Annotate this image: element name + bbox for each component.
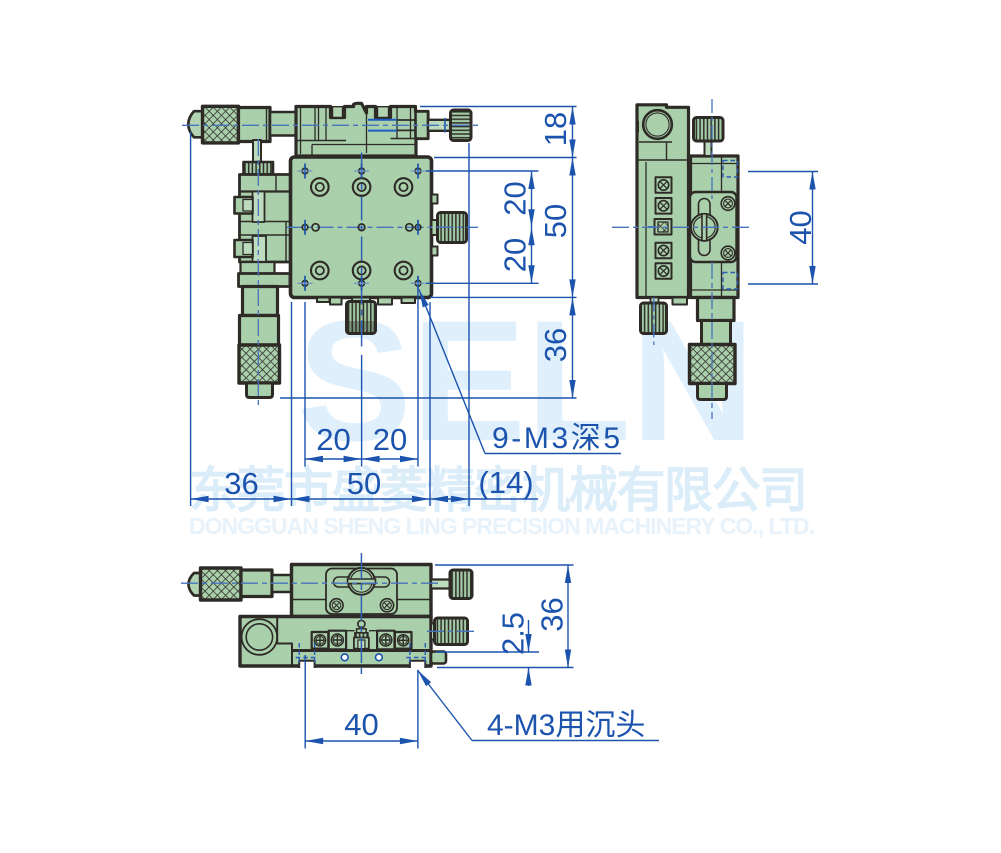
svg-text:20: 20: [497, 238, 532, 272]
svg-text:40: 40: [783, 210, 818, 244]
svg-text:50: 50: [538, 204, 573, 238]
svg-text:DONGGUAN SHENG LING PRECISION: DONGGUAN SHENG LING PRECISION MACHINERY …: [189, 513, 815, 539]
svg-text:36: 36: [535, 597, 570, 631]
svg-text:2.5: 2.5: [495, 612, 530, 655]
svg-text:50: 50: [347, 466, 381, 501]
svg-text:18: 18: [538, 112, 573, 146]
svg-text:20: 20: [497, 181, 532, 215]
svg-text:(14): (14): [478, 465, 533, 500]
svg-text:20: 20: [316, 422, 350, 457]
svg-text:36: 36: [224, 466, 258, 501]
svg-text:36: 36: [538, 328, 573, 362]
svg-text:4-M3用沉头: 4-M3用沉头: [487, 709, 645, 742]
svg-text:40: 40: [344, 707, 378, 742]
svg-text:20: 20: [373, 422, 407, 457]
